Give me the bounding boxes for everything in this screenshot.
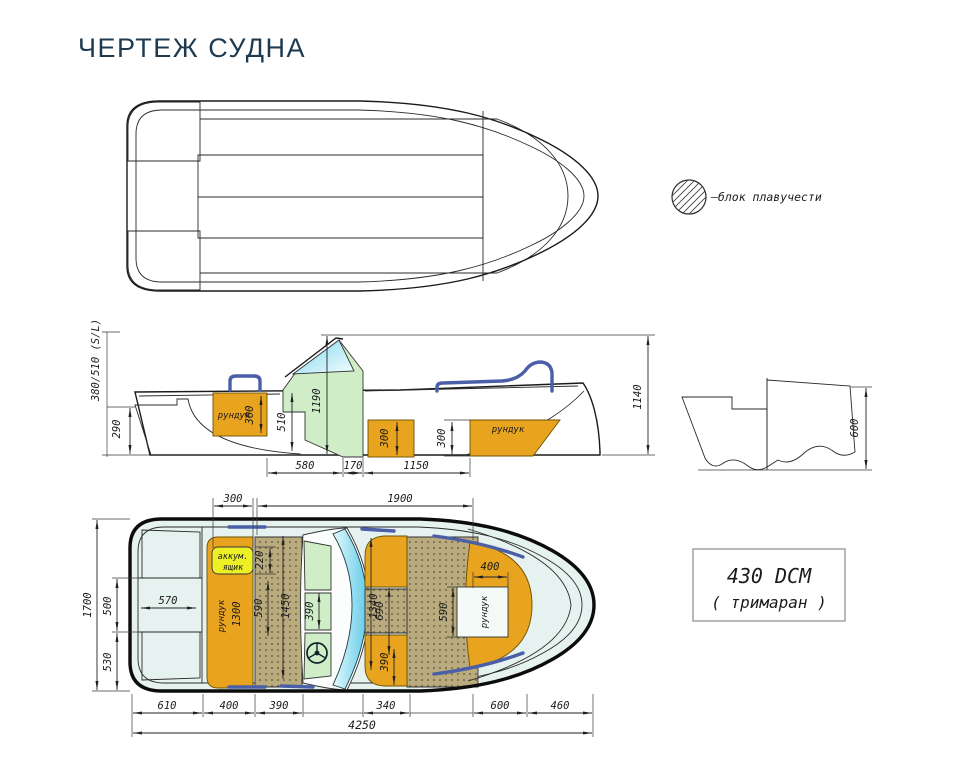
- side-view: 380/510 (S/L) 290 рундук 300 510 1190 30…: [90, 319, 655, 477]
- dim-600-label: 600: [849, 419, 861, 438]
- dim-590-aft-label: 590: [253, 599, 265, 618]
- legend: –блок плавучести: [672, 180, 822, 214]
- dim-590-bow-label: 590: [438, 603, 450, 622]
- model-badge: 430 DCM ( тримаран ): [693, 549, 845, 621]
- hull-bottom-view: [127, 101, 598, 291]
- bow-inner-curve: [497, 119, 568, 273]
- buoyancy-block-stern-top: [128, 102, 200, 161]
- stringer-lines: [200, 111, 497, 281]
- dim-390-seat-label: 390: [379, 653, 391, 673]
- drawing-canvas: ЧЕРТЕЖ СУДНА –блок плавучести: [0, 0, 964, 763]
- dim-460-label: 460: [551, 700, 570, 712]
- aft-locker-label: рундук: [217, 599, 227, 633]
- battery-label-2: ящик: [223, 563, 244, 573]
- dim-1700-label: 1700: [82, 592, 94, 617]
- dim-600-b-label: 600: [491, 700, 510, 712]
- bow-locker-label: рундук: [480, 595, 490, 629]
- dim-530-label: 530: [102, 653, 114, 672]
- dim-170-label: 170: [344, 460, 363, 472]
- dim-510-label: 510: [276, 413, 288, 432]
- page-title: ЧЕРТЕЖ СУДНА: [78, 33, 306, 63]
- dim-610-label: 610: [158, 700, 177, 712]
- dim-580-label: 580: [296, 460, 315, 472]
- battery-label-1: аккум.: [218, 552, 249, 562]
- shaft-length-label: 380/510 (S/L): [90, 319, 102, 402]
- buoyancy-block-stern-bottom: [128, 231, 200, 290]
- transom-right-half: [767, 380, 855, 467]
- stern-grab-handle: [230, 376, 260, 390]
- dim-1450-label: 1450: [280, 593, 292, 618]
- dim-300-mid-label: 300: [379, 429, 391, 449]
- buoyancy-legend-hatch: [672, 180, 706, 214]
- dim-220-label: 220: [254, 551, 266, 570]
- boat-drawing-page: ЧЕРТЕЖ СУДНА –блок плавучести: [0, 0, 964, 763]
- gunwale-rail-top: [362, 529, 394, 531]
- dim-290-label: 290: [111, 420, 123, 439]
- legend-label: –блок плавучести: [710, 190, 822, 204]
- dim-400-bow-label: 400: [481, 561, 500, 573]
- side-windshield-glass: [293, 340, 354, 374]
- model-type: ( тримаран ): [711, 593, 827, 612]
- dim-1190-label: 1190: [311, 388, 323, 413]
- transom-section-view: 600: [682, 378, 872, 470]
- dim-1900-label: 1900: [387, 493, 412, 505]
- console-panel-top: [304, 541, 331, 590]
- dim-390-console-label: 390: [304, 602, 316, 622]
- plan-view: 300 1900 1700 500 530 570 аккум. ящик 22…: [82, 493, 594, 737]
- hull-bottom-inner-line: [136, 110, 584, 282]
- aft-locker-length-label: 1300: [231, 601, 243, 626]
- dim-690-label: 690: [374, 602, 386, 621]
- gunwale-rail-bottom: [281, 686, 313, 687]
- dim-300-aft-label: 300: [244, 406, 256, 426]
- dim-300-top-label: 300: [223, 493, 243, 505]
- dim-570-label: 570: [159, 595, 178, 607]
- dim-300-bow-label: 300: [436, 429, 448, 449]
- transom-left-half: [682, 397, 767, 470]
- dim-1140-label: 1140: [632, 384, 644, 409]
- dim-1150-label: 1150: [403, 460, 428, 472]
- dim-4250-label: 4250: [348, 718, 376, 732]
- dim-340-label: 340: [376, 700, 396, 712]
- buoyancy-block-center: [198, 155, 483, 238]
- side-locker-mid: [368, 420, 414, 457]
- model-name: 430 DCM: [727, 564, 812, 588]
- dim-400-b-label: 400: [220, 700, 239, 712]
- dim-500-label: 500: [102, 597, 114, 616]
- dim-390-b-label: 390: [269, 700, 289, 712]
- side-bow-locker-label: рундук: [491, 425, 525, 435]
